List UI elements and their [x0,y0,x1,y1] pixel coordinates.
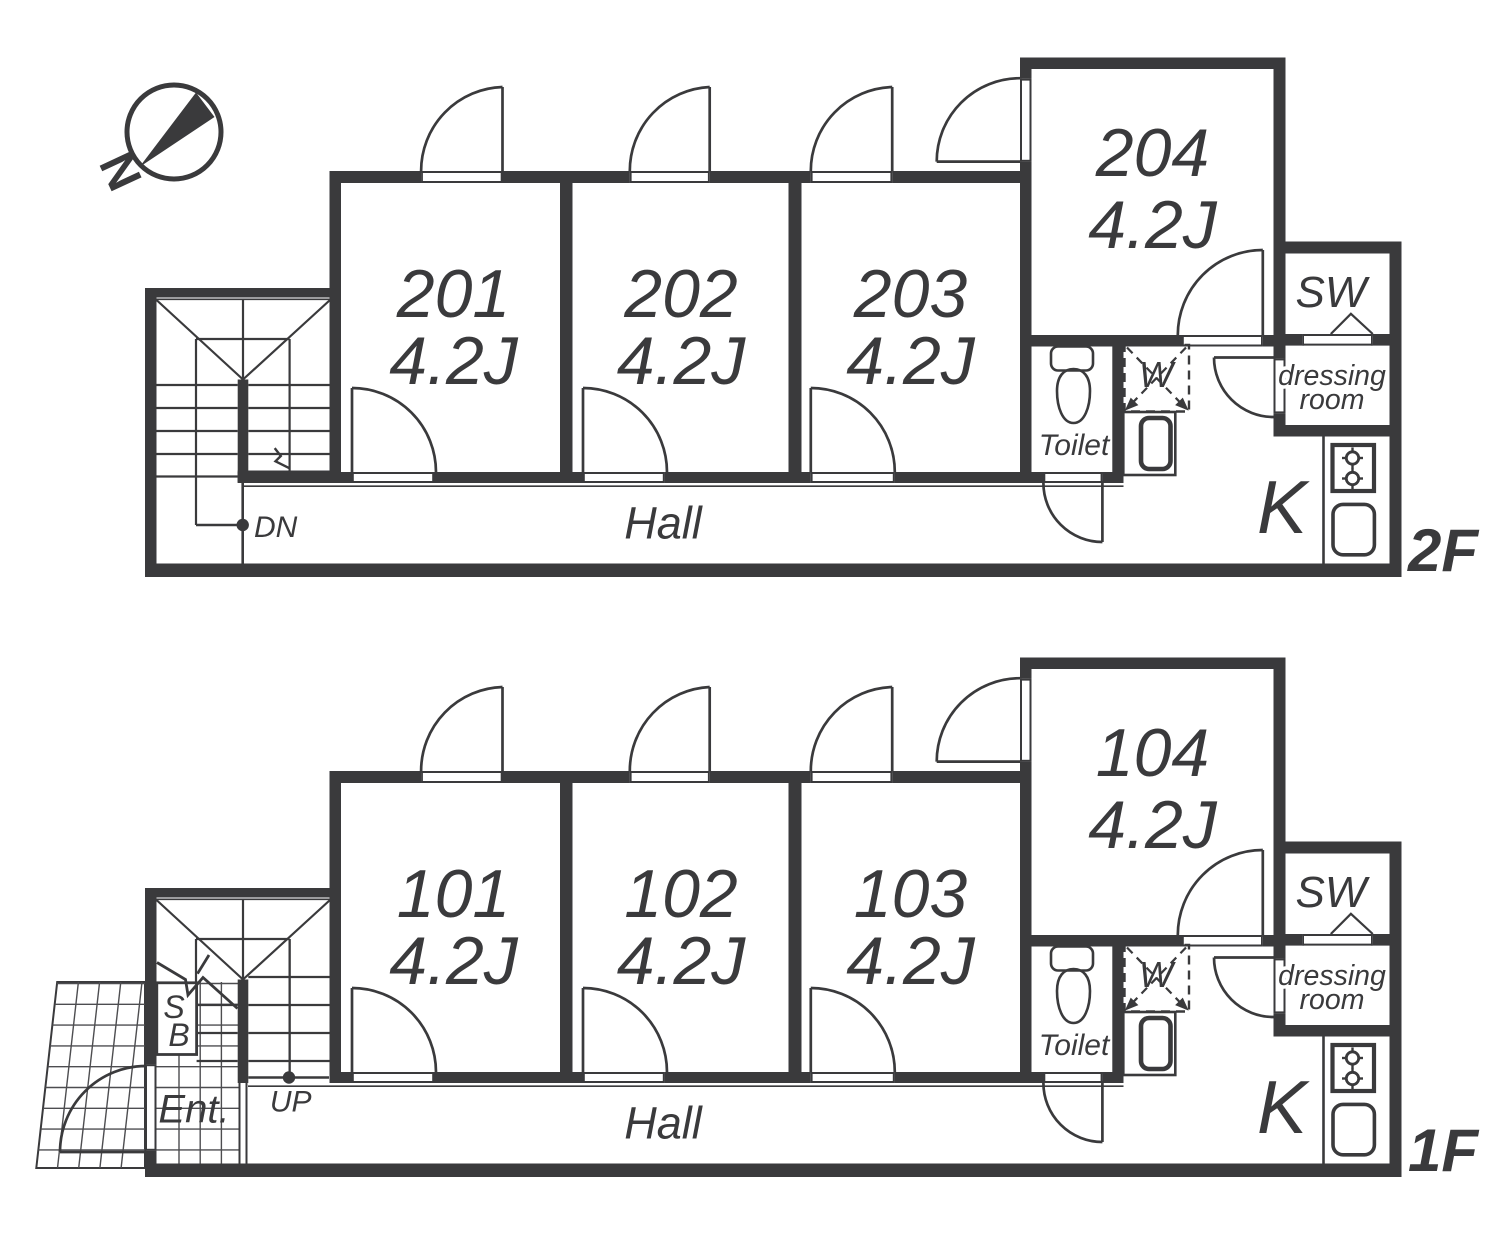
svg-text:Toilet: Toilet [1039,429,1111,462]
svg-text:4.2J: 4.2J [846,923,976,999]
svg-text:2F: 2F [1407,517,1479,584]
svg-text:UP: UP [270,1085,312,1118]
svg-text:101: 101 [397,856,510,932]
svg-text:DN: DN [254,511,298,544]
svg-text:Ent.: Ent. [158,1088,229,1132]
svg-text:4.2J: 4.2J [389,323,519,399]
svg-text:W: W [1139,354,1176,395]
svg-text:Hall: Hall [624,1098,704,1149]
svg-text:W: W [1139,954,1176,995]
svg-text:SW: SW [1296,868,1370,917]
svg-text:Toilet: Toilet [1039,1029,1111,1062]
svg-text:room: room [1300,984,1365,1016]
svg-text:4.2J: 4.2J [389,923,519,999]
svg-text:room: room [1300,384,1365,416]
svg-text:204: 204 [1095,115,1209,191]
svg-text:B: B [168,1017,189,1053]
svg-text:4.2J: 4.2J [1088,787,1218,863]
svg-text:202: 202 [623,256,737,332]
svg-text:1F: 1F [1408,1117,1479,1184]
svg-text:102: 102 [624,856,737,932]
svg-text:203: 203 [853,256,968,332]
svg-text:201: 201 [396,256,510,332]
svg-text:104: 104 [1096,715,1209,791]
svg-text:4.2J: 4.2J [1088,187,1218,263]
svg-text:4.2J: 4.2J [617,923,747,999]
svg-text:Hall: Hall [624,498,704,549]
svg-text:K: K [1257,1065,1310,1149]
svg-text:4.2J: 4.2J [617,323,747,399]
svg-text:SW: SW [1296,268,1370,317]
svg-text:4.2J: 4.2J [846,323,976,399]
svg-text:103: 103 [854,856,968,932]
svg-text:K: K [1257,465,1310,549]
